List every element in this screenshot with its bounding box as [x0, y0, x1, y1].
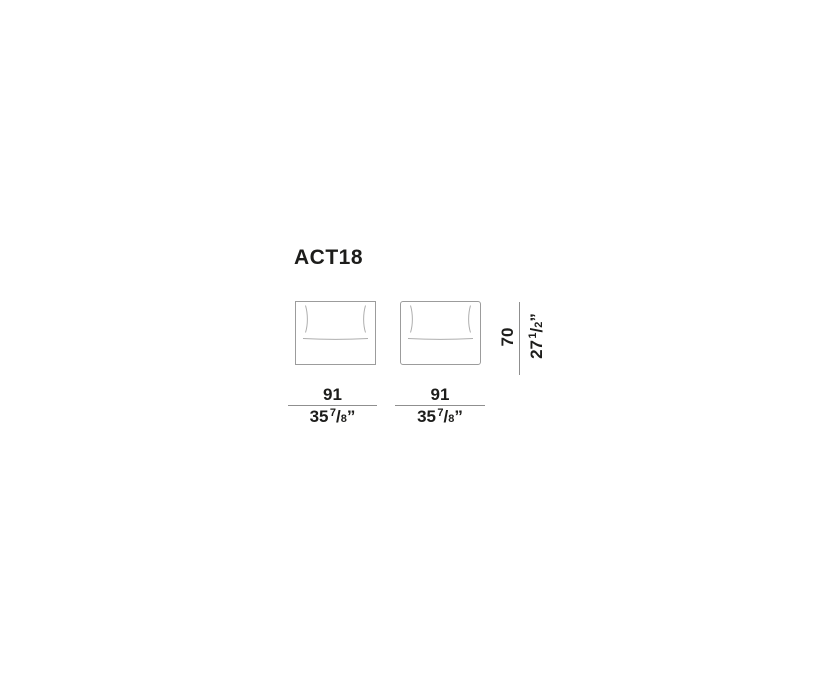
width-dim-1-line: [288, 405, 377, 406]
height-dim-in-denominator: 2: [533, 322, 545, 328]
seat-unit-2-drawing: [400, 301, 481, 365]
height-dim-in-slash: /: [527, 328, 546, 333]
height-dim-in-whole: 27: [527, 340, 546, 359]
unit-2-seat-line: [408, 339, 473, 340]
spec-sheet-canvas: ACT18 91 35 7/8” 91 35 7/8” 70 27 1/2”: [0, 0, 840, 679]
height-dim-cm: 70: [498, 307, 518, 367]
unit-2-outline: [401, 302, 481, 365]
height-dim-inches: 27 1/2”: [523, 296, 543, 376]
width-dim-1-cm: 91: [288, 385, 377, 405]
width-dim-2-in-whole: 35: [417, 407, 436, 426]
height-dim-line: [519, 302, 520, 375]
height-dim-in-unit-mark: ”: [527, 313, 546, 322]
width-dim-2-line: [395, 405, 485, 406]
unit-2-cushion-right-edge: [469, 306, 471, 333]
width-dim-2-cm: 91: [395, 385, 485, 405]
width-dim-1-in-whole: 35: [310, 407, 329, 426]
width-dim-1-in-unit-mark: ”: [347, 407, 356, 426]
product-code-title: ACT18: [294, 246, 363, 270]
unit-1-seat-line: [303, 339, 368, 340]
width-dim-2-in-unit-mark: ”: [454, 407, 463, 426]
unit-2-cushion-left-edge: [411, 306, 413, 333]
unit-1-outline: [296, 302, 376, 365]
unit-1-cushion-right-edge: [364, 306, 366, 333]
width-dim-1-inches: 35 7/8”: [288, 407, 377, 427]
seat-unit-1-drawing: [295, 301, 376, 365]
width-dim-2-inches: 35 7/8”: [395, 407, 485, 427]
unit-1-cushion-left-edge: [306, 306, 308, 333]
height-dim-in-numerator: 1: [527, 332, 539, 338]
